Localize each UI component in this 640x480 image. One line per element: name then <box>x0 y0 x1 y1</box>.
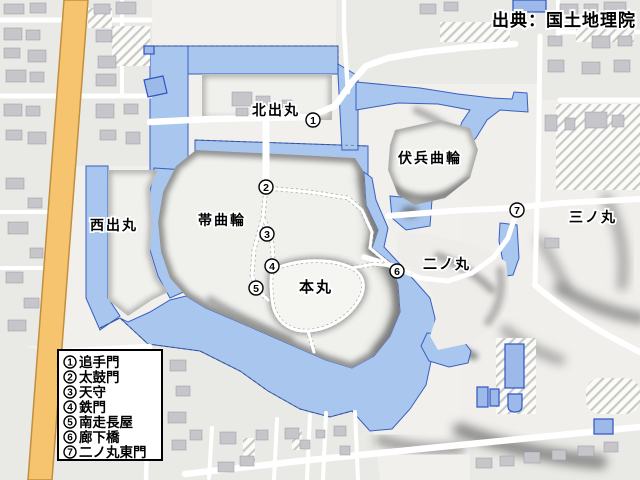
svg-text:1: 1 <box>310 115 316 127</box>
castle-topo-map: 北出丸 西出丸 帯曲輪 本丸 伏兵曲輪 二ノ丸 三ノ丸 1 2 3 4 5 <box>0 0 640 480</box>
legend-item-1: 1 追手門 <box>64 354 120 370</box>
svg-text:1: 1 <box>67 358 73 369</box>
label-ninomaru: 二ノ丸 <box>423 256 471 272</box>
marker-4: 4 <box>265 259 279 273</box>
label-nishidemaru: 西出丸 <box>90 217 138 233</box>
marker-6: 6 <box>390 264 404 278</box>
svg-text:廊下橋: 廊下橋 <box>79 429 120 445</box>
svg-text:3: 3 <box>264 229 270 241</box>
label-kitademaru: 北出丸 <box>252 102 300 118</box>
svg-text:鉄門: 鉄門 <box>79 399 106 415</box>
marker-2: 2 <box>259 180 273 194</box>
svg-text:二ノ丸東門: 二ノ丸東門 <box>79 444 147 460</box>
legend-item-4: 4 鉄門 <box>64 399 106 415</box>
label-fukuheikuruwa: 伏兵曲輪 <box>398 150 462 166</box>
svg-text:7: 7 <box>514 205 520 217</box>
svg-text:6: 6 <box>67 433 73 444</box>
svg-text:南走長屋: 南走長屋 <box>79 414 133 430</box>
label-obikuruwa: 帯曲輪 <box>198 212 246 228</box>
svg-text:3: 3 <box>67 388 73 399</box>
legend-item-2: 2 太鼓門 <box>64 369 120 385</box>
legend-item-3: 3 天守 <box>64 384 106 400</box>
svg-text:2: 2 <box>67 373 73 384</box>
svg-text:6: 6 <box>394 266 400 278</box>
marker-5: 5 <box>249 281 263 295</box>
svg-text:7: 7 <box>67 448 73 459</box>
svg-text:天守: 天守 <box>79 384 106 400</box>
label-honmaru: 本丸 <box>299 278 333 296</box>
marker-1: 1 <box>306 113 320 127</box>
svg-text:5: 5 <box>67 418 73 429</box>
label-sannomaru: 三ノ丸 <box>569 209 617 225</box>
marker-7: 7 <box>510 203 524 217</box>
svg-text:4: 4 <box>67 403 73 414</box>
legend-item-6: 6 廊下橋 <box>64 429 120 445</box>
svg-text:2: 2 <box>263 182 269 194</box>
attribution-text: 出典：国土地理院 <box>492 10 636 30</box>
marker-3: 3 <box>260 227 274 241</box>
svg-text:太鼓門: 太鼓門 <box>79 369 120 385</box>
svg-text:追手門: 追手門 <box>79 354 120 370</box>
map-screenshot: 北出丸 西出丸 帯曲輪 本丸 伏兵曲輪 二ノ丸 三ノ丸 1 2 3 4 5 <box>0 0 640 480</box>
svg-text:4: 4 <box>269 261 275 273</box>
legend-box: 1 追手門 2 太鼓門 3 天守 4 鉄門 5 南走長屋 6 廊下橋 <box>58 350 162 460</box>
svg-text:5: 5 <box>253 283 259 295</box>
